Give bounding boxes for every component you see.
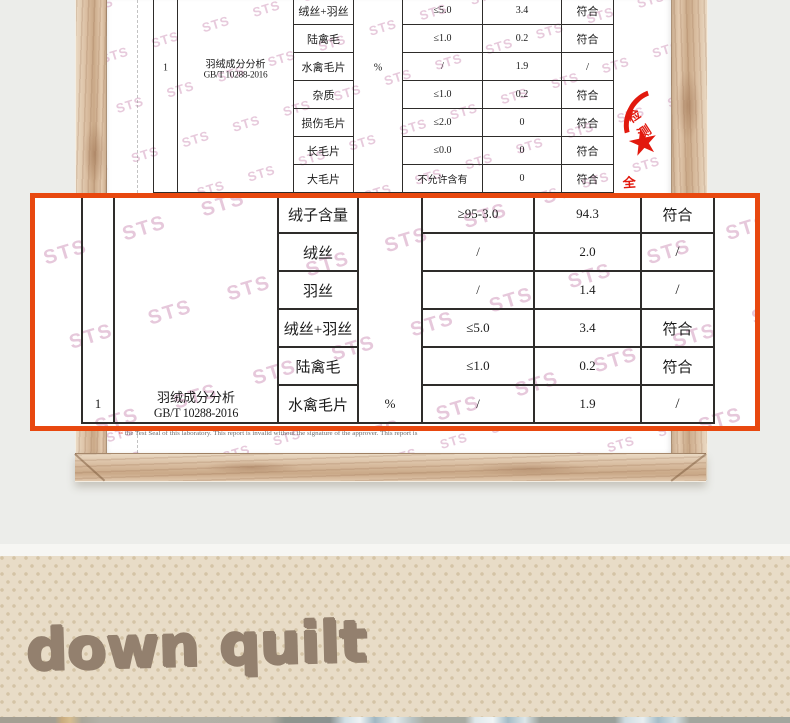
conclusion-cell: 符合 (562, 81, 614, 109)
test-item-cell: 绒子含量 (278, 195, 358, 233)
conclusion-cell: 符合 (641, 309, 714, 347)
test-item-cell: 陆禽毛 (278, 347, 358, 385)
serial-number: 1 (163, 63, 168, 74)
result-value-cell: 0.2 (483, 25, 562, 53)
banner-section: down quilt (0, 556, 790, 717)
analysis-name-cell: 羽绒成分分析GB/T 10288-2016 (178, 0, 294, 193)
next-photo-strip (0, 717, 790, 723)
test-item-cell: 大毛片 (294, 165, 354, 193)
conclusion-cell: 符合 (562, 25, 614, 53)
conclusion-cell: 符合 (641, 347, 714, 385)
test-item-cell: 长毛片 (294, 137, 354, 165)
standard-value-cell: ≤2.0 (403, 109, 483, 137)
test-item-cell: 水禽毛片 (278, 385, 358, 423)
standard-value-cell: ≤5.0 (422, 309, 534, 347)
test-item-cell: 损伤毛片 (294, 109, 354, 137)
analysis-standard: GB/T 10288-2016 (115, 406, 277, 421)
test-item-cell: 绒丝+羽丝 (294, 0, 354, 25)
conclusion-cell: / (641, 271, 714, 309)
standard-value-cell: / (403, 53, 483, 81)
banner-title: down quilt (25, 614, 367, 680)
serial-number-cell: 1 (82, 195, 114, 423)
unit-cell: % (358, 195, 422, 423)
standard-value-cell: / (422, 233, 534, 271)
conclusion-cell: 符合 (562, 0, 614, 25)
test-item-cell: 杂质 (294, 81, 354, 109)
result-value-cell: 2.0 (534, 233, 641, 271)
result-value-cell: 0 (483, 137, 562, 165)
conclusion-cell: / (562, 53, 614, 81)
result-value-cell: 0.2 (534, 347, 641, 385)
page: STS STS STS STS STS STS STS STS STS STS … (0, 0, 790, 723)
wooden-frame-bottom (75, 453, 706, 482)
standard-value-cell: ≤0.0 (403, 137, 483, 165)
divider-strip (0, 544, 790, 556)
conclusion-cell: / (641, 233, 714, 271)
serial-number-cell: 1 (154, 0, 178, 193)
result-value-cell: 3.4 (534, 309, 641, 347)
analysis-standard: GB/T 10288-2016 (178, 71, 293, 81)
standard-value-cell: 不允许含有 (403, 165, 483, 193)
table-row: 1羽绒成分分析GB/T 10288-2016绒丝+羽丝%≤5.03.4符合 (154, 0, 614, 25)
conclusion-cell: 符合 (562, 137, 614, 165)
analysis-name: 羽绒成分分析 (115, 387, 277, 406)
composition-table-zoom: 1羽绒成分分析GB/T 10288-2016绒子含量%≥95-3.094.3符合… (81, 194, 715, 424)
test-item-cell: 绒丝+羽丝 (278, 309, 358, 347)
result-value-cell: 94.3 (534, 195, 641, 233)
result-value-cell: 3.4 (483, 0, 562, 25)
standard-value-cell: ≤5.0 (403, 0, 483, 25)
photo-backdrop: STS STS STS STS STS STS STS STS STS STS … (0, 0, 790, 544)
unit-label: % (374, 63, 382, 74)
serial-number: 1 (95, 396, 102, 411)
test-item-cell: 水禽毛片 (294, 53, 354, 81)
conclusion-cell: 符合 (641, 195, 714, 233)
result-value-cell: 1.9 (534, 385, 641, 423)
conclusion-cell: / (641, 385, 714, 423)
table-row: 1羽绒成分分析GB/T 10288-2016绒子含量%≥95-3.094.3符合 (82, 195, 714, 233)
test-item-cell: 绒丝 (278, 233, 358, 271)
unit-cell: % (354, 0, 403, 193)
standard-value-cell: / (422, 271, 534, 309)
standard-value-cell: ≤1.0 (403, 81, 483, 109)
result-value-cell: 0.2 (483, 81, 562, 109)
result-value-cell: 0 (483, 109, 562, 137)
standard-value-cell: / (422, 385, 534, 423)
highlight-zoom-box: STS STS STS STS STS STS STS STS STS STS … (30, 193, 760, 431)
unit-label: % (385, 396, 396, 411)
standard-value-cell: ≤1.0 (422, 347, 534, 385)
result-value-cell: 1.4 (534, 271, 641, 309)
composition-table-top: 1羽绒成分分析GB/T 10288-2016绒丝+羽丝%≤5.03.4符合陆禽毛… (153, 0, 614, 193)
conclusion-cell: 符合 (562, 165, 614, 193)
analysis-name-cell: 羽绒成分分析GB/T 10288-2016 (114, 195, 278, 423)
result-value-cell: 1.9 (483, 53, 562, 81)
standard-value-cell: ≤1.0 (403, 25, 483, 53)
conclusion-cell: 符合 (562, 109, 614, 137)
standard-value-cell: ≥95-3.0 (422, 195, 534, 233)
result-value-cell: 0 (483, 165, 562, 193)
test-item-cell: 羽丝 (278, 271, 358, 309)
test-item-cell: 陆禽毛 (294, 25, 354, 53)
analysis-name: 羽绒成分分析 (178, 56, 293, 71)
